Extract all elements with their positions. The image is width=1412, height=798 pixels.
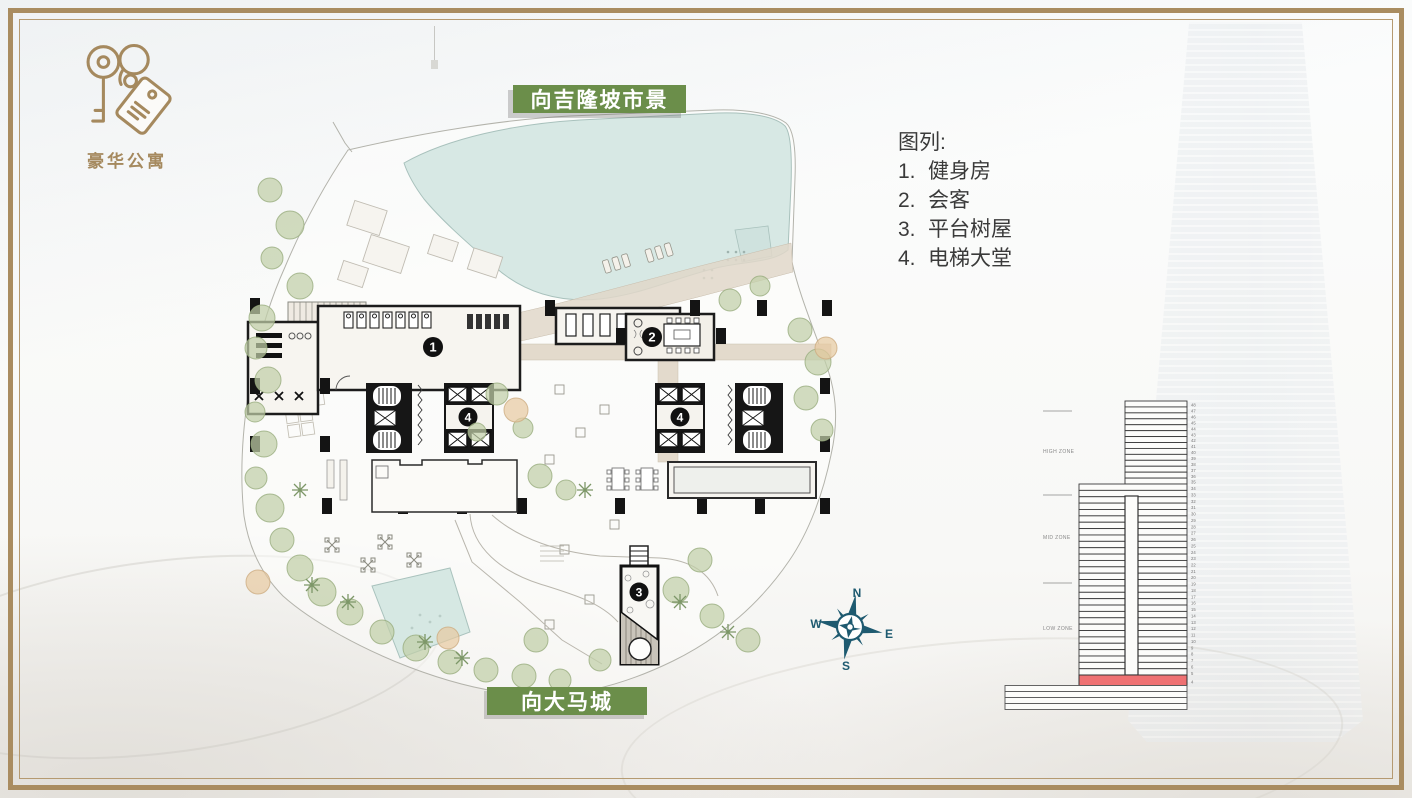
elevation-diagram: 4847464544434241403938373635343332313029… — [1000, 392, 1215, 732]
svg-text:28: 28 — [1191, 524, 1196, 529]
svg-text:22: 22 — [1191, 562, 1196, 567]
legend-item: 1.健身房 — [898, 157, 1012, 186]
svg-text:39: 39 — [1191, 456, 1196, 461]
svg-text:26: 26 — [1191, 537, 1196, 542]
svg-text:29: 29 — [1191, 518, 1196, 523]
legend-item: 3.平台树屋 — [898, 215, 1012, 244]
legend-item: 2.会客 — [898, 186, 1012, 215]
svg-text:35: 35 — [1191, 480, 1196, 485]
svg-text:27: 27 — [1191, 531, 1196, 536]
svg-text:2: 2 — [648, 330, 655, 345]
lounge-room — [626, 314, 714, 360]
svg-text:48: 48 — [1191, 403, 1196, 408]
svg-text:46: 46 — [1191, 414, 1196, 419]
svg-text:7: 7 — [1191, 658, 1194, 663]
svg-text:LOW ZONE: LOW ZONE — [1043, 626, 1073, 632]
svg-text:32: 32 — [1191, 499, 1196, 504]
svg-text:41: 41 — [1191, 444, 1196, 449]
svg-text:31: 31 — [1191, 505, 1196, 510]
logo: 豪华公寓 — [62, 36, 192, 172]
svg-text:6: 6 — [1191, 664, 1194, 669]
svg-text:16: 16 — [1191, 601, 1196, 606]
compass: N E S W — [810, 586, 893, 673]
compass-n: N — [853, 586, 862, 600]
svg-text:18: 18 — [1191, 588, 1196, 593]
svg-text:23: 23 — [1191, 556, 1196, 561]
gym-annex — [248, 322, 318, 414]
svg-text:3: 3 — [636, 586, 643, 600]
svg-text:37: 37 — [1191, 468, 1196, 473]
svg-text:12: 12 — [1191, 626, 1196, 631]
compass-w: W — [810, 617, 822, 631]
banner-kl-city-view: 向吉隆坡市景 — [513, 85, 686, 113]
svg-text:25: 25 — [1191, 543, 1196, 548]
legend-item: 4.电梯大堂 — [898, 244, 1012, 273]
svg-text:24: 24 — [1191, 550, 1196, 555]
lap-pool — [668, 462, 816, 498]
slide: 4 4 — [0, 0, 1412, 798]
svg-text:4: 4 — [465, 411, 472, 425]
svg-text:45: 45 — [1191, 420, 1196, 425]
svg-text:47: 47 — [1191, 409, 1196, 414]
svg-text:44: 44 — [1191, 426, 1196, 431]
svg-text:42: 42 — [1191, 438, 1196, 443]
svg-text:8: 8 — [1191, 652, 1194, 657]
compass-s: S — [842, 659, 850, 673]
svg-text:MID ZONE: MID ZONE — [1043, 535, 1071, 541]
svg-text:38: 38 — [1191, 462, 1196, 467]
brand-name: 豪华公寓 — [62, 147, 192, 172]
svg-text:11: 11 — [1191, 633, 1196, 638]
banner-bandar-malaysia: 向大马城 — [487, 687, 647, 715]
legend: 图列: 1.健身房 2.会客 3.平台树屋 4.电梯大堂 — [898, 128, 1012, 273]
boundary-spur — [333, 122, 352, 152]
svg-text:19: 19 — [1191, 582, 1196, 587]
svg-text:14: 14 — [1191, 613, 1196, 618]
svg-text:40: 40 — [1191, 450, 1196, 455]
svg-text:30: 30 — [1191, 512, 1196, 517]
gym-room — [318, 306, 520, 390]
svg-text:4: 4 — [1191, 680, 1194, 685]
svg-text:34: 34 — [1191, 486, 1196, 491]
keys-icon — [68, 36, 186, 140]
svg-text:HIGH ZONE: HIGH ZONE — [1043, 449, 1075, 455]
legend-heading: 图列: — [898, 128, 1012, 157]
svg-text:5: 5 — [1191, 671, 1194, 676]
svg-text:36: 36 — [1191, 474, 1196, 479]
svg-text:33: 33 — [1191, 492, 1196, 497]
svg-text:9: 9 — [1191, 645, 1194, 650]
svg-text:4: 4 — [677, 411, 684, 425]
svg-text:43: 43 — [1191, 432, 1196, 437]
svg-text:17: 17 — [1191, 594, 1196, 599]
svg-text:1: 1 — [429, 340, 436, 355]
compass-e: E — [885, 627, 893, 641]
svg-text:13: 13 — [1191, 620, 1196, 625]
svg-text:10: 10 — [1191, 639, 1196, 644]
svg-text:21: 21 — [1191, 569, 1196, 574]
svg-text:20: 20 — [1191, 575, 1196, 580]
svg-text:15: 15 — [1191, 607, 1196, 612]
